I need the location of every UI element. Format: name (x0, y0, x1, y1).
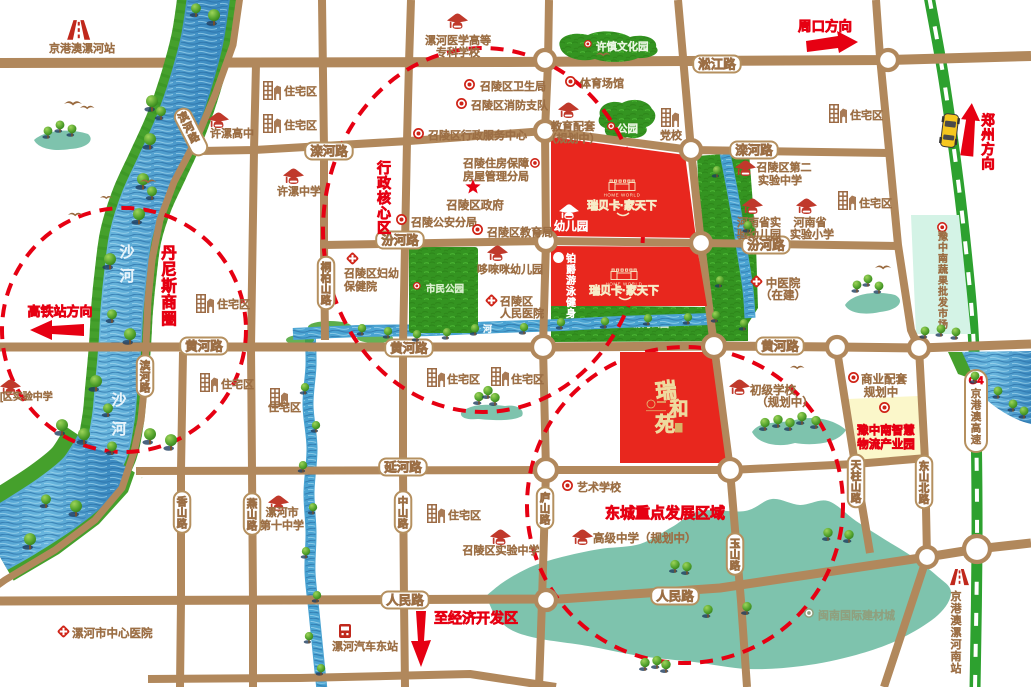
svg-text:庐: 庐 (540, 491, 551, 504)
svg-text:住宅区: 住宅区 (284, 84, 317, 98)
svg-text:区: 区 (377, 220, 391, 236)
svg-text:漯河医学高等: 漯河医学高等 (425, 33, 491, 47)
svg-text:第十中学: 第十中学 (260, 518, 304, 532)
svg-text:河: 河 (111, 421, 126, 438)
svg-text:召陵区第二: 召陵区第二 (757, 160, 812, 174)
svg-text:路: 路 (247, 519, 258, 532)
svg-text:铂: 铂 (566, 252, 576, 265)
svg-text:批: 批 (938, 285, 948, 298)
svg-text:召陵公安分局: 召陵公安分局 (411, 215, 477, 229)
svg-text:漯河市中心医院: 漯河市中心医院 (72, 626, 153, 640)
svg-text:商业配套: 商业配套 (861, 372, 907, 386)
svg-text:至经济开发区: 至经济开发区 (434, 610, 518, 626)
svg-text:站: 站 (951, 661, 962, 675)
svg-text:高铁站方向: 高铁站方向 (27, 304, 92, 319)
svg-text:实验中学: 实验中学 (758, 173, 802, 187)
svg-text:山: 山 (247, 508, 258, 521)
svg-text:（规划中）: （规划中） (756, 395, 814, 409)
svg-text:召陵区政府: 召陵区政府 (446, 198, 504, 212)
svg-text:京: 京 (971, 387, 982, 400)
svg-text:漯河市: 漯河市 (266, 505, 299, 519)
svg-text:中: 中 (938, 241, 948, 254)
svg-text:路: 路 (140, 381, 151, 394)
svg-text:爵: 爵 (566, 263, 576, 276)
svg-text:住宅区: 住宅区 (850, 108, 883, 122)
svg-text:闽南国际建材城: 闽南国际建材城 (818, 608, 895, 622)
svg-text:沙: 沙 (119, 244, 134, 261)
svg-text:向: 向 (981, 156, 995, 172)
svg-text:苑: 苑 (655, 413, 675, 436)
svg-text:游: 游 (566, 274, 576, 287)
svg-text:柏: 柏 (321, 271, 332, 284)
svg-text:瑞贝卡·家天下: 瑞贝卡·家天下 (587, 198, 657, 212)
svg-text:豫: 豫 (938, 230, 948, 243)
svg-text:人民路: 人民路 (656, 589, 694, 604)
svg-text:实验小学: 实验小学 (790, 227, 834, 241)
svg-text:市民公园: 市民公园 (426, 283, 464, 295)
svg-text:山: 山 (540, 502, 551, 515)
svg-text:召陵区教育局: 召陵区教育局 (487, 225, 553, 239)
svg-text:召陵区实验中学: 召陵区实验中学 (463, 543, 540, 557)
svg-text:圈: 圈 (161, 310, 177, 328)
svg-text:市: 市 (938, 307, 948, 320)
svg-text:人民医院: 人民医院 (500, 306, 544, 320)
svg-text:山: 山 (177, 506, 188, 519)
svg-text:初级学校: 初级学校 (750, 383, 796, 397)
svg-text:HOME WORLD: HOME WORLD (604, 193, 641, 198)
svg-text:身: 身 (566, 307, 576, 320)
svg-text:尼: 尼 (161, 261, 177, 279)
svg-text:滦河路: 滦河路 (310, 144, 348, 159)
svg-text:速: 速 (971, 434, 982, 446)
svg-text:山: 山 (851, 481, 862, 494)
svg-text:中医院: 中医院 (766, 276, 801, 290)
svg-text:住宅区: 住宅区 (284, 118, 317, 132)
svg-text:丹: 丹 (161, 244, 177, 262)
svg-text:哆唻咪幼儿园: 哆唻咪幼儿园 (477, 263, 543, 276)
svg-text:漯: 漯 (951, 626, 962, 639)
svg-text:规划中: 规划中 (864, 385, 899, 399)
svg-text:沙: 沙 (111, 392, 126, 409)
svg-text:瑞贝卡·家天下: 瑞贝卡·家天下 (589, 283, 659, 297)
svg-text:山: 山 (919, 470, 930, 483)
svg-text:路: 路 (177, 517, 188, 530)
svg-text:住宅区: 住宅区 (511, 372, 544, 386)
svg-text:行: 行 (376, 160, 391, 176)
svg-text:教育配套: 教育配套 (551, 119, 595, 133)
svg-text:京港澳漯河站: 京港澳漯河站 (49, 41, 115, 55)
svg-text:方: 方 (981, 141, 995, 157)
svg-text:许慎文化园: 许慎文化园 (596, 40, 649, 53)
svg-text:（规划中）: （规划中） (546, 131, 601, 145)
svg-text:政: 政 (377, 175, 392, 191)
svg-text:人民路: 人民路 (386, 593, 424, 608)
svg-text:郑: 郑 (981, 112, 995, 128)
svg-text:河南省实: 河南省实 (737, 215, 781, 229)
svg-text:港: 港 (951, 602, 962, 615)
svg-text:柱: 柱 (851, 469, 862, 482)
svg-text:路: 路 (540, 513, 551, 526)
svg-text:体育场馆: 体育场馆 (580, 76, 624, 90)
svg-text:河: 河 (951, 638, 962, 651)
svg-text:住宅区: 住宅区 (447, 372, 480, 386)
svg-text:燕: 燕 (247, 497, 258, 510)
svg-text:南: 南 (951, 650, 962, 663)
svg-text:山: 山 (398, 506, 409, 519)
svg-text:召陵住房保障: 召陵住房保障 (463, 156, 529, 170)
svg-text:发: 发 (938, 296, 948, 309)
svg-text:路: 路 (321, 294, 332, 307)
svg-text:斯: 斯 (161, 276, 177, 295)
svg-text:商: 商 (161, 293, 177, 312)
svg-text:物流产业园: 物流产业园 (857, 437, 915, 451)
svg-text:滦河路: 滦河路 (735, 143, 773, 158)
svg-text:澳: 澳 (951, 614, 962, 627)
svg-text:南: 南 (938, 252, 948, 265)
svg-text:党校: 党校 (660, 128, 682, 142)
svg-text:州: 州 (980, 128, 995, 143)
svg-text:山: 山 (321, 283, 332, 296)
svg-text:召陵区: 召陵区 (500, 295, 533, 308)
svg-text:河南省: 河南省 (794, 216, 827, 229)
svg-text:山: 山 (730, 548, 741, 561)
svg-text:路: 路 (919, 493, 930, 506)
svg-text:东城重点发展区域: 东城重点发展区域 (605, 504, 725, 522)
svg-text:艺术学校: 艺术学校 (577, 480, 621, 494)
svg-text:幼儿园: 幼儿园 (554, 220, 589, 233)
svg-text:周口方向: 周口方向 (798, 18, 852, 34)
svg-text:香: 香 (176, 495, 188, 508)
svg-text:黄河路: 黄河路 (761, 339, 799, 354)
svg-text:住宅区: 住宅区 (217, 297, 250, 311)
svg-text:中: 中 (398, 495, 409, 508)
svg-text:住宅区: 住宅区 (448, 508, 481, 522)
svg-text:漯河汽车东站: 漯河汽车东站 (332, 639, 398, 653)
svg-text:港: 港 (971, 400, 982, 412)
svg-text:路: 路 (851, 492, 862, 505)
svg-text:召陵区行政服务中心: 召陵区行政服务中心 (428, 128, 527, 142)
svg-text:（在建）: （在建） (760, 288, 806, 302)
svg-text:泳: 泳 (566, 286, 576, 298)
svg-text:黄河路: 黄河路 (185, 339, 223, 354)
svg-text:核: 核 (377, 190, 391, 206)
svg-text:高级中学（规划中）: 高级中学（规划中） (593, 531, 697, 545)
svg-text:淞江路: 淞江路 (698, 57, 736, 72)
svg-text:河: 河 (483, 323, 492, 334)
svg-text:滨: 滨 (140, 359, 151, 372)
svg-text:北: 北 (919, 482, 930, 495)
svg-text:澳: 澳 (971, 410, 982, 423)
svg-text:桐: 桐 (321, 260, 332, 273)
svg-text:东: 东 (919, 459, 930, 472)
svg-text:果: 果 (938, 275, 948, 287)
svg-text:黄河路: 黄河路 (390, 341, 428, 356)
svg-text:蔬: 蔬 (938, 264, 948, 276)
svg-text:高: 高 (971, 422, 982, 435)
svg-text:健: 健 (566, 297, 576, 309)
svg-text:验幼儿园: 验幼儿园 (737, 227, 781, 241)
svg-text:住宅区: 住宅区 (221, 377, 254, 391)
svg-text:召陵区卫生局: 召陵区卫生局 (480, 79, 546, 93)
svg-text:路: 路 (398, 517, 409, 530)
svg-text:[区实验中学: [区实验中学 (0, 390, 53, 403)
svg-text:延河路: 延河路 (383, 460, 422, 475)
svg-text:召陵区消防支队: 召陵区消防支队 (471, 98, 548, 112)
svg-text:豫中南智慧: 豫中南智慧 (857, 423, 915, 437)
svg-text:许漯高中: 许漯高中 (210, 126, 254, 140)
svg-text:京: 京 (951, 589, 962, 603)
svg-text:住宅区: 住宅区 (268, 400, 301, 414)
svg-text:专科学校: 专科学校 (436, 45, 480, 59)
svg-text:河: 河 (119, 268, 134, 285)
svg-text:许漯中学: 许漯中学 (277, 184, 321, 198)
svg-text:路: 路 (730, 559, 741, 572)
svg-text:召陵区妇幼: 召陵区妇幼 (344, 267, 399, 280)
svg-text:心: 心 (377, 205, 391, 221)
svg-text:住宅区: 住宅区 (859, 196, 892, 210)
svg-text:保健院: 保健院 (344, 279, 377, 293)
